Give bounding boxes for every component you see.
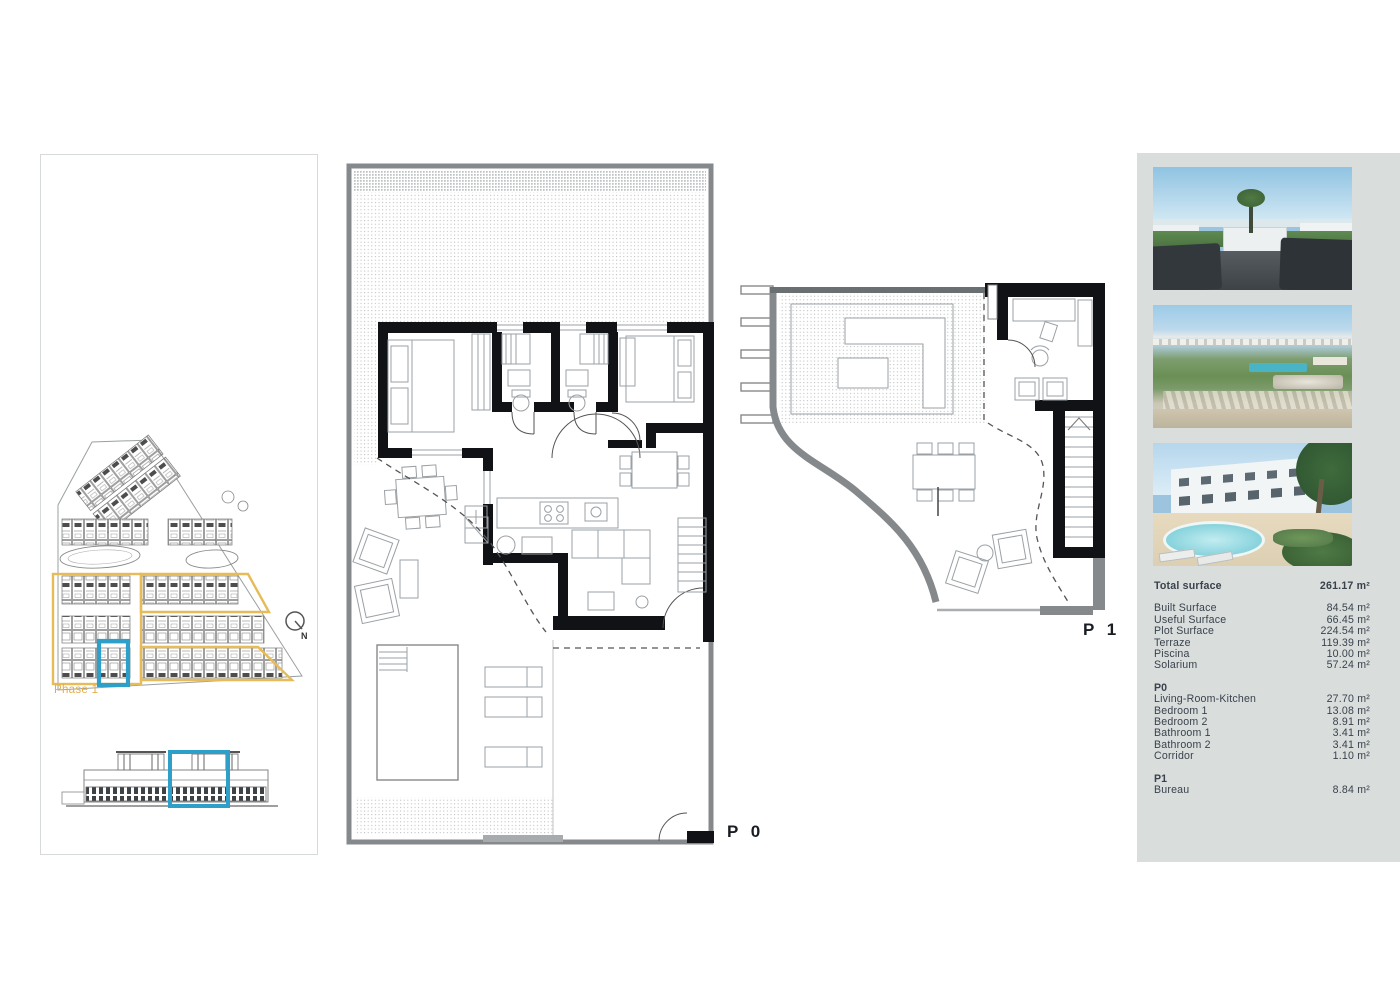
lounge-chair [946,551,989,594]
sofa [572,530,650,558]
residences-pool-photo [1153,443,1352,566]
lounge-chair [353,528,399,574]
pool [377,645,458,780]
side-table [400,560,418,598]
side-table [977,545,993,561]
p0-rear-strip [354,171,706,192]
p0-garden [354,192,706,325]
lounge-chair [992,529,1031,568]
p0-windows [412,325,667,504]
table-row: Living-Room-Kitchen27.70 m² [1154,694,1370,705]
total-surface-row: Total surface 261.17 m² [1154,581,1370,592]
plan-sheet: Total surface 261.17 m² Built Surface84.… [0,0,1400,990]
stairs-p1 [1065,417,1093,537]
basin [497,536,515,554]
table-row: Corridor1.10 m² [1154,751,1370,762]
p1-floor-plan [741,283,1105,615]
bed-1 [388,340,454,432]
outdoor-sofa [845,318,945,408]
p0-plot-boundary [349,166,711,842]
outdoor-dining-set [383,464,459,531]
p1-boundary-dashed [984,293,1070,605]
row-label: Total surface [1154,581,1222,592]
p1-terrace-furniture [913,443,1032,593]
p1-solarium [779,293,987,423]
kitchen-sink [591,507,601,517]
buildings-blob [1273,375,1343,389]
threshold [483,835,563,842]
table-row: Plot Surface224.54 m² [1154,626,1370,637]
p0-front-strip [356,797,553,835]
outdoor-dining-table [913,455,975,489]
stove [540,502,568,524]
p0-label: P 0 [727,822,764,842]
cabinet [1078,300,1092,346]
toilet-2 [569,395,585,411]
p0-floor-plan [349,166,714,843]
row-value: 261.17 m² [1320,581,1370,592]
rooftop-terrace-photo [1153,167,1352,290]
bed-2 [626,336,694,402]
p1-louvers [741,286,773,423]
sun-loungers [485,667,542,767]
desk [1013,299,1075,321]
bbq [465,517,488,543]
aerial-coast-photo [1153,305,1352,428]
wardrobe-2 [620,338,635,386]
outdoor-coffee-table [838,358,888,388]
table-row: Bureau8.84 m² [1154,785,1370,796]
lounge-chair [354,578,399,623]
sofa-right [1279,238,1352,290]
stairs-p0 [678,518,706,592]
p0-furniture [388,334,706,610]
dining-table-indoor [632,452,677,488]
toilet-1 [513,395,529,411]
tree-crown [1237,189,1265,207]
p1-terrace-boundary [773,287,936,602]
info-panel: Total surface 261.17 m² Built Surface84.… [1137,153,1400,862]
p0-terrace [353,464,563,842]
garden-bed [1273,529,1333,547]
table-row: Solarium57.24 m² [1154,660,1370,671]
shower-1 [502,334,530,364]
skyline-strip [1153,339,1352,345]
p0-boundary-dashed [377,458,546,632]
bureau-furniture [1008,299,1092,400]
p0-walls [378,322,714,843]
desk-chair [1032,350,1048,366]
p0-doors [512,412,703,841]
foreground-road [1153,409,1352,428]
kitchen-counter [497,498,618,528]
sink-1 [508,370,530,386]
surface-table: Total surface 261.17 m² Built Surface84.… [1154,581,1370,797]
p1-walls [985,283,1105,558]
sofa-left [1153,243,1222,290]
p1-window-slot [988,285,997,319]
pool-cluster [1249,363,1307,372]
p1-label: P 1 [1083,620,1120,640]
coffee-table [588,592,614,610]
phase1-label: Phase 1 [54,684,98,696]
wardrobe-1 [472,334,490,410]
site-overview-panel [40,154,318,855]
shower-2 [580,334,608,364]
sofa-chaise [622,558,650,584]
sink-2 [566,370,588,386]
white-buildings [1313,357,1347,365]
